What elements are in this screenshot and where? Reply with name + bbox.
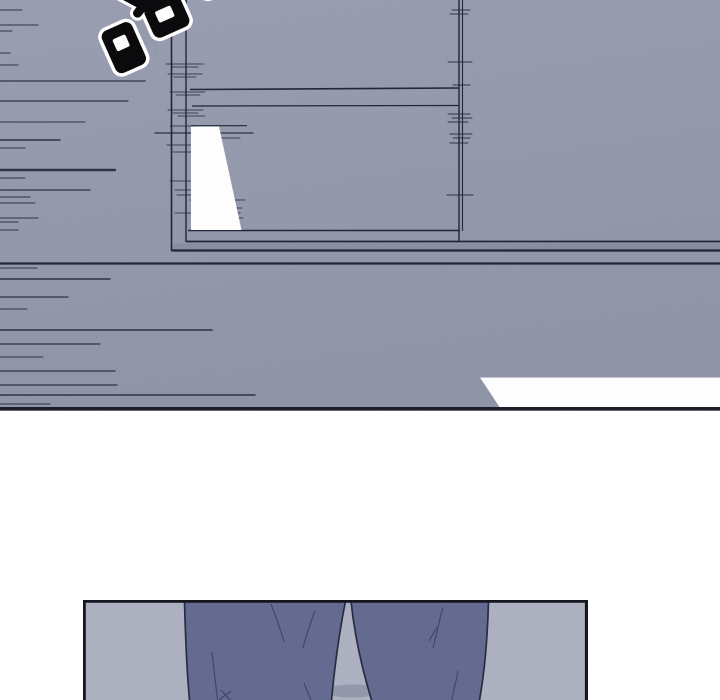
legs-scene — [83, 600, 588, 700]
closet-scene — [0, 0, 720, 411]
paper-grain — [0, 0, 720, 411]
panel-gutter — [0, 411, 720, 600]
comic-page: 喀 — [0, 0, 720, 700]
panel-legs — [83, 600, 588, 700]
paper-grain — [83, 600, 588, 700]
panel-closet: 喀 — [0, 0, 720, 411]
floor-light — [480, 378, 720, 408]
frame-shadow-band — [172, 244, 720, 250]
